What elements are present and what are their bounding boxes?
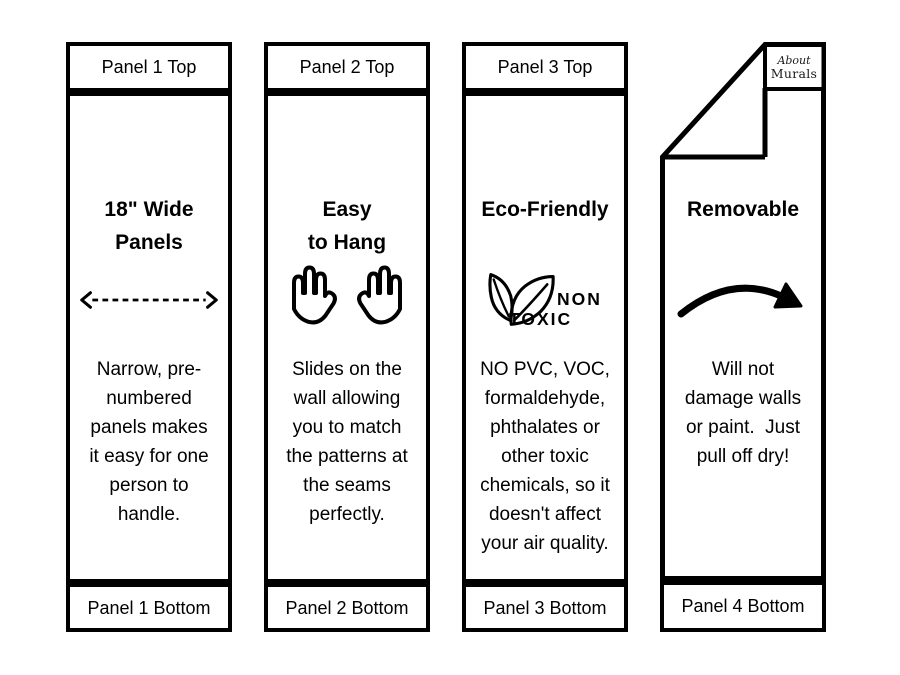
panel-1-body-box: 18" Wide Panels Narrow, pre- numbered pa… [66,92,232,583]
panel-4: About Murals Removable Will not damage w… [660,42,826,632]
panel-1-bottom-label: Panel 1 Bottom [87,598,210,618]
logo-about-text: About [777,55,810,67]
folded-corner-panel-outline [660,42,826,632]
panel-2-bottom-label: Panel 2 Bottom [285,598,408,618]
left-hand-icon [286,263,338,329]
panel-4-body-text: Will not damage walls or paint. Just pul… [660,355,826,471]
panel-3-body-text: NO PVC, VOC, formaldehyde, phthalates or… [466,355,624,558]
wallpaper-panels-infographic: Panel 1 Top 18" Wide Panels Narrow, pre-… [0,0,900,675]
panel-4-title: Removable [660,193,826,226]
panel-1: Panel 1 Top 18" Wide Panels Narrow, pre-… [66,42,232,632]
aboutmurals-logo: About Murals [765,45,823,89]
non-toxic-label-toxic: TOXIC [509,309,572,330]
right-hand-icon [356,263,408,329]
non-toxic-label-non: NON [557,289,602,310]
curved-peel-arrow-icon [675,270,811,322]
two-hands-icon [286,263,408,329]
panel-1-body-text: Narrow, pre- numbered panels makes it ea… [70,355,228,529]
panel-1-top-box: Panel 1 Top [66,42,232,92]
panel-1-bottom-box: Panel 1 Bottom [66,583,232,632]
panel-3-title: Eco-Friendly [466,193,624,226]
panel-3: Panel 3 Top Eco-Friendly NON TOXIC NO PV… [462,42,628,632]
panel-1-icon-slot [70,263,228,367]
panel-3-bottom-label: Panel 3 Bottom [483,598,606,618]
panel-2-top-label: Panel 2 Top [300,57,395,77]
panel-3-body-box: Eco-Friendly NON TOXIC NO PVC, VOC, form… [462,92,628,583]
panel-2-icon-slot [268,263,426,367]
panel-2-bottom-box: Panel 2 Bottom [264,583,430,632]
panel-2-top-box: Panel 2 Top [264,42,430,92]
dashed-width-arrow-icon [76,289,222,311]
panel-1-top-label: Panel 1 Top [102,57,197,77]
panel-2-body-box: Easy to Hang Slides on the wall allowing… [264,92,430,583]
panel-3-icon-slot: NON TOXIC [466,263,624,367]
panel-3-top-label: Panel 3 Top [498,57,593,77]
panel-2-title: Easy to Hang [268,193,426,259]
logo-murals-text: Murals [771,67,818,80]
panel-3-top-box: Panel 3 Top [462,42,628,92]
panel-4-bottom-label: Panel 4 Bottom [660,583,826,630]
panel-1-title: 18" Wide Panels [70,193,228,259]
non-toxic-badge: NON TOXIC [469,263,621,337]
panel-2-body-text: Slides on the wall allowing you to match… [268,355,426,529]
panel-3-bottom-box: Panel 3 Bottom [462,583,628,632]
panel-2: Panel 2 Top Easy to Hang Slides on the w… [264,42,430,632]
